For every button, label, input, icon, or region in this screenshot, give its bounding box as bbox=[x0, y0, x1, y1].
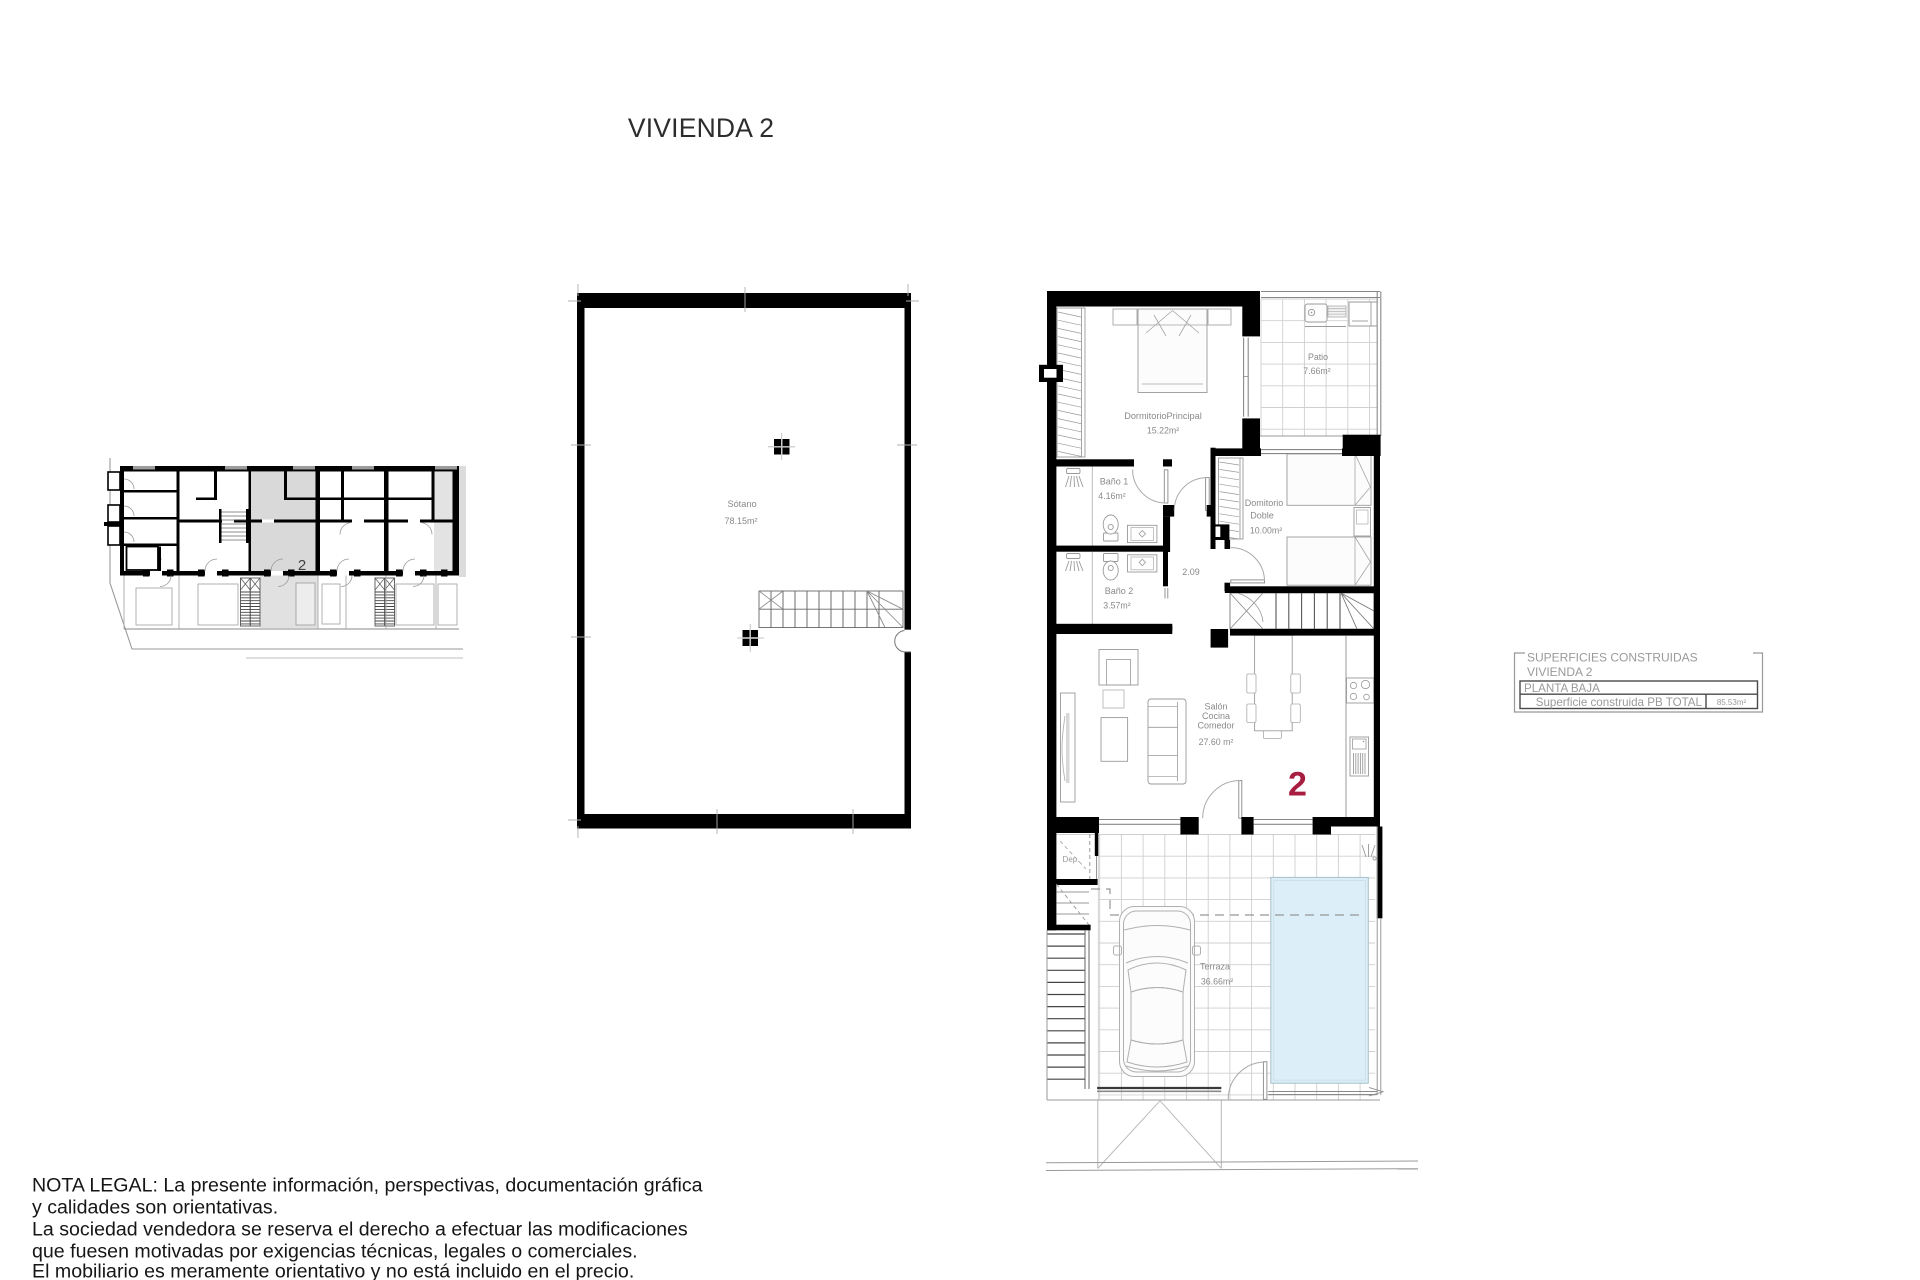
svg-text:3.57m²: 3.57m² bbox=[1103, 601, 1130, 611]
svg-text:4.16m²: 4.16m² bbox=[1098, 491, 1125, 501]
svg-text:78.15m²: 78.15m² bbox=[724, 516, 757, 526]
svg-text:2: 2 bbox=[298, 557, 306, 574]
svg-text:10.00m²: 10.00m² bbox=[1250, 526, 1282, 536]
svg-text:Cocina: Cocina bbox=[1202, 711, 1230, 721]
svg-text:Salón: Salón bbox=[1204, 702, 1227, 712]
svg-text:2.09: 2.09 bbox=[1182, 567, 1200, 577]
svg-text:85.53m²: 85.53m² bbox=[1717, 698, 1747, 707]
svg-text:y calidades son orientativas.: y calidades son orientativas. bbox=[32, 1197, 278, 1219]
svg-text:Dep.: Dep. bbox=[1063, 855, 1080, 864]
svg-text:PLANTA BAJA: PLANTA BAJA bbox=[1524, 682, 1600, 695]
svg-text:SUPERFICIES CONSTRUIDAS: SUPERFICIES CONSTRUIDAS bbox=[1527, 651, 1698, 665]
svg-text:Superficie construida PB TOTAL: Superficie construida PB TOTAL bbox=[1536, 696, 1703, 709]
svg-text:Sótano: Sótano bbox=[727, 499, 756, 509]
svg-text:Domitorio: Domitorio bbox=[1245, 498, 1284, 508]
svg-text:Baño 2: Baño 2 bbox=[1105, 586, 1134, 596]
svg-text:El mobiliario es meramente ori: El mobiliario es meramente orientativo y… bbox=[32, 1261, 634, 1280]
svg-text:27.60 m²: 27.60 m² bbox=[1199, 737, 1234, 747]
svg-text:Patio: Patio bbox=[1308, 352, 1328, 362]
svg-text:Terraza: Terraza bbox=[1200, 962, 1230, 972]
svg-text:NOTA LEGAL: La presente inform: NOTA LEGAL: La presente información, per… bbox=[32, 1175, 703, 1197]
svg-text:VIVIENDA 2: VIVIENDA 2 bbox=[1527, 665, 1593, 679]
svg-text:15.22m²: 15.22m² bbox=[1147, 426, 1179, 436]
svg-text:que fuesen motivadas por exige: que fuesen motivadas por exigencias técn… bbox=[32, 1241, 638, 1263]
svg-text:Baño 1: Baño 1 bbox=[1100, 477, 1129, 487]
svg-text:Doble: Doble bbox=[1250, 511, 1274, 521]
svg-text:Comedor: Comedor bbox=[1197, 721, 1234, 731]
svg-text:VIVIENDA 2: VIVIENDA 2 bbox=[628, 113, 774, 143]
svg-text:DormitorioPrincipal: DormitorioPrincipal bbox=[1124, 411, 1202, 421]
svg-text:36.66m²: 36.66m² bbox=[1201, 977, 1233, 987]
svg-text:7.66m²: 7.66m² bbox=[1303, 366, 1330, 376]
svg-text:2: 2 bbox=[1288, 766, 1307, 804]
svg-text:La sociedad vendedora se reser: La sociedad vendedora se reserva el dere… bbox=[32, 1219, 688, 1241]
